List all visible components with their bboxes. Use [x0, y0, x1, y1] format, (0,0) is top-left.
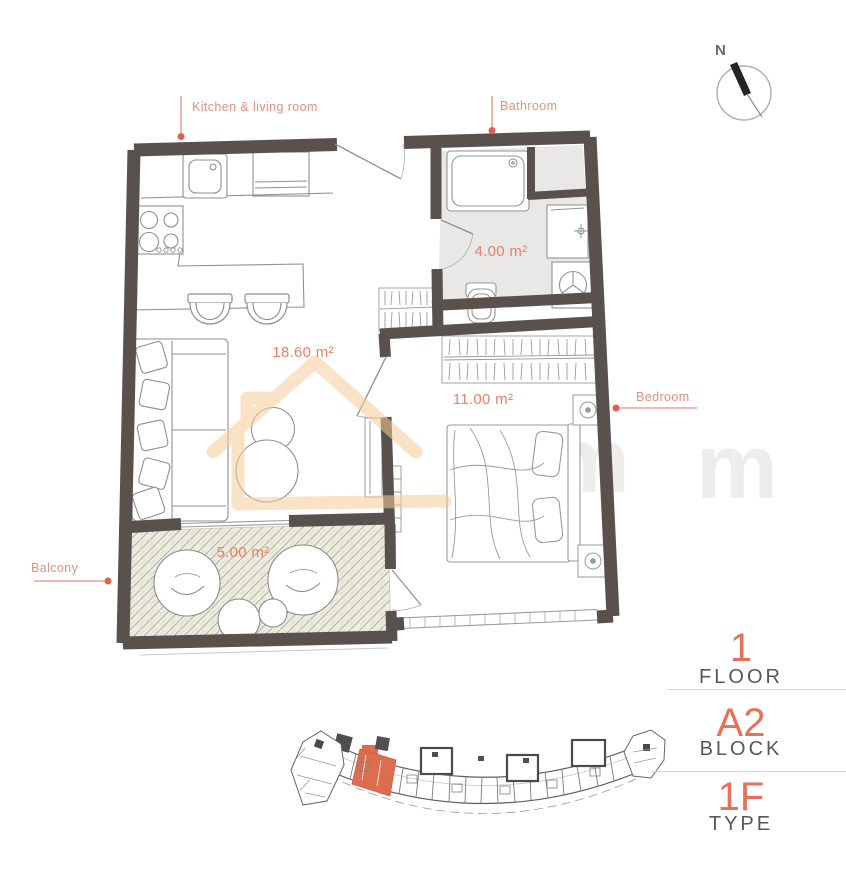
compass-needle	[730, 62, 751, 96]
wardrobe-hall	[379, 288, 437, 331]
info-type-label: TYPE	[646, 814, 836, 834]
watermark-letters: m m	[548, 410, 778, 518]
room-label-bathroom: Bathroom	[500, 99, 557, 113]
door-balcony-bedroom	[392, 570, 421, 610]
info-block-value: A2	[646, 703, 836, 743]
info-floor-value: 1	[646, 628, 836, 668]
info-divider-1	[667, 689, 846, 690]
compass-icon	[717, 62, 771, 120]
info-divider-2	[652, 771, 846, 772]
bar-stools	[188, 294, 289, 324]
leader-dot-balcony	[105, 578, 112, 585]
sofa	[131, 339, 228, 521]
door-entry	[335, 144, 405, 179]
room-label-balcony: Balcony	[31, 561, 78, 575]
room-label-bedroom: Bedroom	[636, 390, 690, 404]
hall-console	[365, 418, 382, 497]
bathroom-vanity-sink	[547, 205, 588, 258]
site-plan	[291, 730, 665, 814]
floor-plan-page: m m	[0, 0, 846, 873]
bed	[447, 424, 580, 562]
window-bedroom	[399, 610, 598, 629]
room-label-kitchen-living: Kitchen & living room	[192, 100, 318, 114]
area-label-bedroom: 11.00 m²	[453, 391, 513, 408]
site-plan-cores	[421, 740, 605, 781]
compass-north-label: N	[715, 42, 726, 59]
cooktop	[136, 206, 183, 254]
bed-headboard	[568, 424, 580, 561]
watermark-letter: m	[696, 416, 778, 518]
kitchen-appliance	[253, 152, 309, 196]
area-label-bathroom: 4.00 m²	[475, 243, 528, 260]
area-label-balcony: 5.00 m²	[217, 544, 270, 561]
leader-dot-kitchen	[178, 133, 185, 140]
info-type-value: 1F	[646, 777, 836, 817]
leader-dot-bedroom	[613, 405, 620, 412]
leader-dot-bathroom	[489, 127, 496, 134]
wardrobe-bedroom	[442, 336, 596, 383]
site-plan-left-wing	[291, 731, 344, 805]
balcony-sill-line	[140, 648, 388, 655]
kitchen-sink	[183, 154, 227, 198]
info-floor-label: FLOOR	[646, 667, 836, 687]
shower	[447, 151, 529, 211]
area-label-kitchen-living: 18.60 m²	[272, 344, 334, 361]
info-block-label: BLOCK	[646, 739, 836, 759]
